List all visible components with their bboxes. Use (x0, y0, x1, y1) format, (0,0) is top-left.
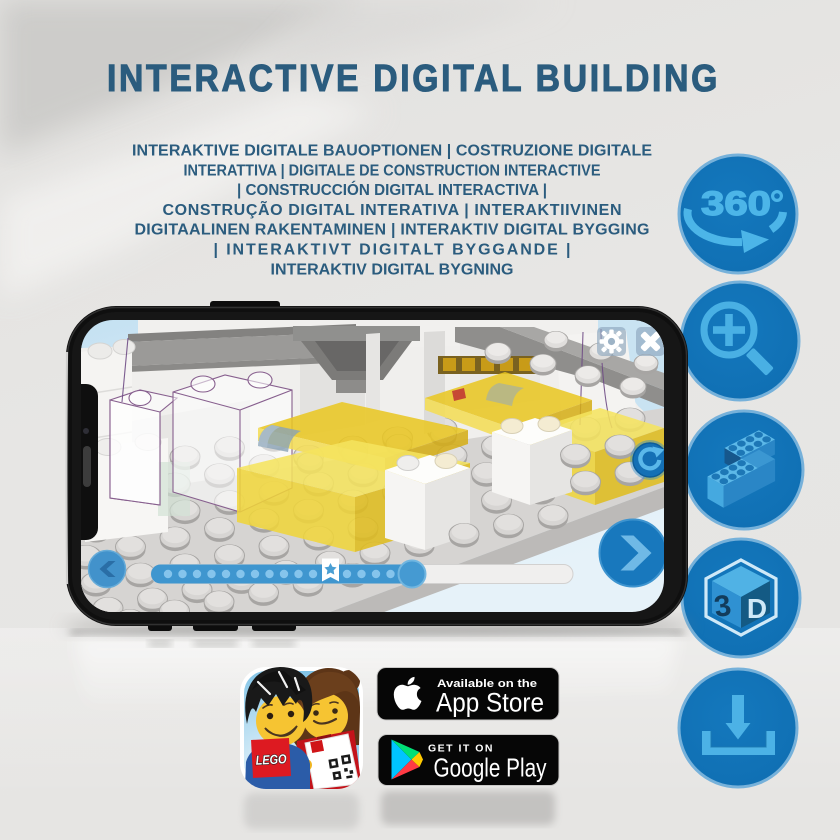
svg-text:CONSTRUÇÃO DIGITAL INTERATIVA: CONSTRUÇÃO DIGITAL INTERATIVA | INTERAKT… (163, 199, 622, 219)
svg-text:INTERAKTIVE DIGITALE BAUOPTION: INTERAKTIVE DIGITALE BAUOPTIONEN | COSTR… (132, 143, 652, 160)
svg-text:360: 360 (701, 185, 771, 223)
svg-text:App Store: App Store (436, 688, 544, 718)
svg-text:Google Play: Google Play (434, 753, 547, 783)
svg-text:D: D (747, 593, 767, 624)
svg-text:LEGO: LEGO (255, 751, 287, 768)
svg-text:| CONSTRUCCIÓN DIGITAL INTERAC: | CONSTRUCCIÓN DIGITAL INTERACTIVA | (237, 180, 547, 199)
svg-text:INTERACTIVE DIGITAL BUILDING: INTERACTIVE DIGITAL BUILDING (107, 58, 720, 100)
svg-text:INTERATTIVA | DIGITALE DE CONS: INTERATTIVA | DIGITALE DE CONSTRUCTION I… (184, 162, 601, 179)
svg-text:DIGITAALINEN RAKENTAMINEN | IN: DIGITAALINEN RAKENTAMINEN | INTERAKTIV D… (135, 222, 650, 239)
svg-text:INTERAKTIV DIGITAL BYGNING: INTERAKTIV DIGITAL BYGNING (271, 261, 514, 278)
